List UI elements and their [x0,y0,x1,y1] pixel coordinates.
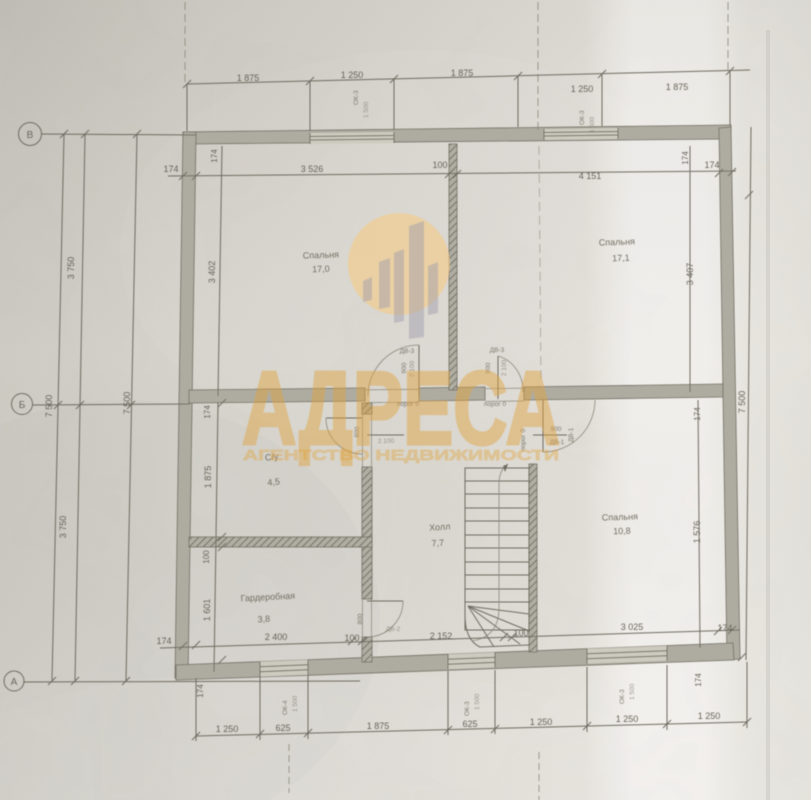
svg-text:174: 174 [693,407,702,421]
svg-text:АГЕНТСТВО НЕДВИЖИМОСТИ: АГЕНТСТВО НЕДВИЖИМОСТИ [243,448,559,464]
svg-text:ОК-3: ОК-3 [353,90,360,105]
svg-text:174: 174 [163,164,178,174]
svg-text:Спальня: Спальня [303,249,340,260]
svg-text:1 500: 1 500 [474,693,481,710]
svg-text:100: 100 [432,160,447,170]
svg-text:ДВ-2: ДВ-2 [386,626,401,633]
svg-text:800: 800 [357,613,364,624]
svg-text:1 250: 1 250 [571,84,594,94]
svg-text:2 400: 2 400 [265,632,288,642]
svg-text:1 500: 1 500 [363,101,370,118]
svg-text:7 500: 7 500 [122,392,132,415]
svg-text:1 875: 1 875 [237,73,260,83]
svg-text:100: 100 [344,633,359,643]
svg-text:ДВ-1: ДВ-1 [568,427,575,442]
svg-text:4,5: 4,5 [267,476,280,487]
svg-text:ОК-3: ОК-3 [464,701,471,716]
svg-text:174: 174 [694,673,703,687]
svg-text:3 025: 3 025 [621,622,644,632]
svg-text:1 250: 1 250 [530,717,553,727]
svg-text:174: 174 [196,684,205,698]
svg-text:1 576: 1 576 [692,521,702,544]
svg-text:Холл: Холл [429,521,451,532]
svg-text:7 500: 7 500 [737,391,747,414]
svg-text:174: 174 [210,149,219,163]
svg-text:1 500: 1 500 [589,116,596,133]
svg-text:1 601: 1 601 [202,599,212,622]
svg-text:7,7: 7,7 [431,538,444,549]
svg-text:1 875: 1 875 [203,466,213,489]
svg-text:1 500: 1 500 [292,695,299,712]
svg-text:1 875: 1 875 [451,68,474,78]
svg-text:ОК-3: ОК-3 [579,110,586,125]
svg-text:174: 174 [717,623,732,633]
svg-text:100: 100 [513,628,528,638]
svg-text:1 250: 1 250 [341,70,364,80]
svg-text:3 750: 3 750 [58,516,68,539]
svg-text:В: В [27,130,34,141]
svg-text:17,0: 17,0 [312,264,330,275]
svg-text:625: 625 [275,723,290,733]
svg-text:174: 174 [156,636,171,646]
svg-text:174: 174 [681,151,690,165]
svg-text:ОК-4: ОК-4 [282,700,289,715]
svg-text:174: 174 [704,160,719,170]
svg-text:625: 625 [462,719,477,729]
svg-text:100: 100 [202,550,211,564]
svg-text:ОК-3: ОК-3 [619,689,626,704]
svg-text:3 407: 3 407 [685,263,695,286]
svg-text:1 250: 1 250 [698,711,721,721]
svg-text:А: А [11,677,18,688]
svg-text:17,1: 17,1 [612,253,630,264]
svg-text:1 875: 1 875 [367,721,390,731]
svg-text:Б: Б [19,400,26,411]
svg-text:1 500: 1 500 [629,683,636,700]
svg-text:10,8: 10,8 [613,526,631,537]
svg-text:7 500: 7 500 [44,395,54,418]
svg-text:3,8: 3,8 [257,614,270,625]
svg-text:Спальня: Спальня [602,511,639,522]
svg-text:3 526: 3 526 [301,164,324,174]
svg-text:3 402: 3 402 [207,261,217,284]
svg-text:Спальня: Спальня [599,236,636,247]
svg-text:2 152: 2 152 [430,631,453,641]
svg-text:1 250: 1 250 [616,714,639,724]
svg-text:174: 174 [203,405,212,419]
svg-text:4 151: 4 151 [579,171,602,181]
svg-text:1 250: 1 250 [216,724,239,734]
svg-text:3 750: 3 750 [66,257,76,280]
svg-text:1 875: 1 875 [666,82,689,92]
